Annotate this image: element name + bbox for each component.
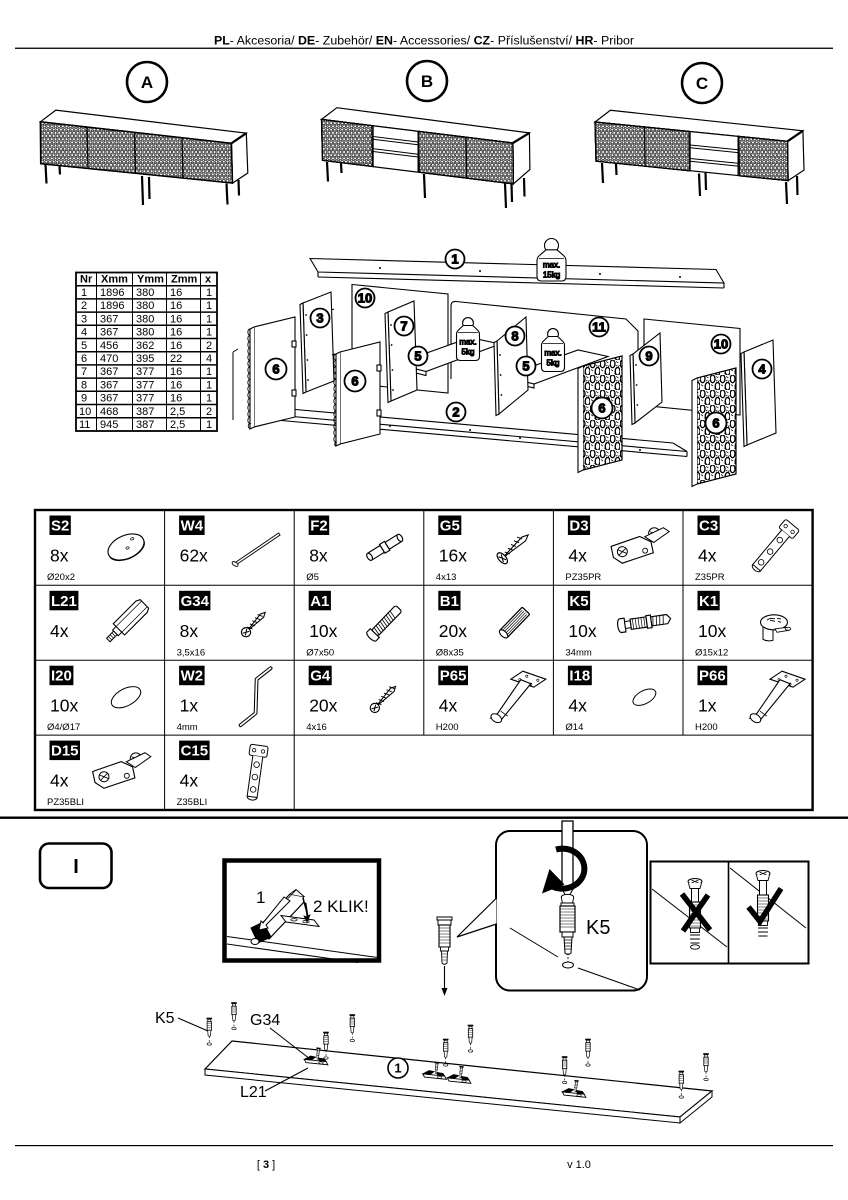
- svg-text:4: 4: [206, 353, 212, 365]
- svg-text:1896: 1896: [100, 287, 124, 299]
- svg-text:A1: A1: [310, 593, 329, 610]
- svg-text:6: 6: [351, 374, 358, 389]
- svg-text:C: C: [696, 74, 708, 93]
- svg-text:Ø4/Ø17: Ø4/Ø17: [47, 722, 80, 733]
- svg-text:8x: 8x: [309, 546, 328, 566]
- svg-text:max.: max.: [459, 338, 476, 347]
- svg-text:Z35PR: Z35PR: [695, 572, 725, 583]
- svg-text:1: 1: [206, 419, 212, 431]
- svg-text:8x: 8x: [180, 621, 199, 641]
- svg-text:W4: W4: [181, 518, 204, 535]
- svg-text:2: 2: [206, 340, 212, 352]
- svg-text:K5: K5: [569, 593, 588, 610]
- svg-text:H200: H200: [695, 722, 718, 733]
- svg-text:Ø8x35: Ø8x35: [436, 647, 464, 658]
- svg-text:8x: 8x: [50, 546, 69, 566]
- svg-text:G34: G34: [250, 1012, 280, 1029]
- svg-text:367: 367: [100, 313, 118, 325]
- svg-text:4x: 4x: [698, 546, 717, 566]
- svg-text:6: 6: [81, 353, 87, 365]
- svg-text:4x: 4x: [180, 771, 199, 791]
- svg-text:16: 16: [170, 300, 182, 312]
- svg-text:C3: C3: [699, 518, 718, 535]
- svg-text:Xmm: Xmm: [101, 274, 128, 286]
- svg-text:380: 380: [136, 327, 154, 339]
- svg-text:377: 377: [136, 393, 154, 405]
- svg-text:945: 945: [100, 419, 118, 431]
- svg-text:10: 10: [358, 291, 372, 306]
- svg-text:1: 1: [206, 366, 212, 378]
- svg-text:11: 11: [592, 320, 606, 335]
- svg-text:2,5: 2,5: [170, 406, 185, 418]
- svg-text:16x: 16x: [439, 546, 467, 566]
- svg-text:F2: F2: [310, 518, 328, 535]
- svg-text:[ 3 ]: [ 3 ]: [257, 1159, 275, 1171]
- svg-text:1: 1: [451, 252, 458, 267]
- svg-text:10: 10: [714, 337, 728, 352]
- svg-text:1x: 1x: [180, 696, 199, 716]
- svg-text:4x13: 4x13: [436, 572, 457, 583]
- svg-text:6: 6: [598, 401, 605, 416]
- svg-text:4x: 4x: [568, 696, 587, 716]
- svg-text:20x: 20x: [439, 621, 467, 641]
- svg-text:5kg: 5kg: [547, 359, 560, 368]
- svg-text:380: 380: [136, 287, 154, 299]
- svg-text:max.: max.: [544, 349, 561, 358]
- svg-text:10x: 10x: [50, 696, 78, 716]
- svg-text:10x: 10x: [698, 621, 726, 641]
- svg-text:2: 2: [452, 405, 459, 420]
- svg-text:Ø20x2: Ø20x2: [47, 572, 75, 583]
- svg-text:1x: 1x: [698, 696, 717, 716]
- svg-text:2,5: 2,5: [170, 419, 185, 431]
- svg-text:3,5x16: 3,5x16: [177, 647, 206, 658]
- svg-text:PL- Akcesoria/ DE- Zubehör/ EN: PL- Akcesoria/ DE- Zubehör/ EN- Accessor…: [214, 34, 634, 48]
- svg-text:H200: H200: [436, 722, 459, 733]
- svg-text:Ø7x50: Ø7x50: [306, 647, 334, 658]
- svg-text:1: 1: [206, 287, 212, 299]
- svg-text:G5: G5: [440, 518, 460, 535]
- svg-text:Nr: Nr: [80, 274, 93, 286]
- svg-text:v 1.0: v 1.0: [567, 1159, 591, 1171]
- svg-text:367: 367: [100, 393, 118, 405]
- svg-text:4mm: 4mm: [177, 722, 198, 733]
- svg-text:9: 9: [645, 349, 652, 364]
- svg-text:B1: B1: [440, 593, 459, 610]
- svg-text:16: 16: [170, 379, 182, 391]
- svg-text:PZ35PR: PZ35PR: [565, 572, 601, 583]
- svg-text:22: 22: [170, 353, 182, 365]
- svg-text:16: 16: [170, 313, 182, 325]
- svg-text:Ymm: Ymm: [137, 274, 164, 286]
- svg-text:A: A: [141, 73, 153, 92]
- svg-text:16: 16: [170, 393, 182, 405]
- svg-text:3: 3: [316, 311, 323, 326]
- svg-text:D15: D15: [51, 743, 79, 760]
- svg-text:16: 16: [170, 287, 182, 299]
- svg-text:5: 5: [414, 349, 421, 364]
- svg-text:B: B: [421, 72, 433, 91]
- svg-text:9: 9: [81, 393, 87, 405]
- svg-text:4x16: 4x16: [306, 722, 327, 733]
- svg-text:5: 5: [522, 359, 529, 374]
- svg-text:10x: 10x: [309, 621, 337, 641]
- svg-text:4x: 4x: [568, 546, 587, 566]
- svg-text:387: 387: [136, 406, 154, 418]
- svg-text:7: 7: [81, 366, 87, 378]
- svg-text:P65: P65: [440, 668, 467, 685]
- svg-text:380: 380: [136, 300, 154, 312]
- svg-text:468: 468: [100, 406, 118, 418]
- svg-text:4: 4: [81, 327, 87, 339]
- svg-text:max.: max.: [543, 261, 560, 270]
- svg-text:11: 11: [79, 419, 90, 431]
- svg-text:380: 380: [136, 313, 154, 325]
- svg-text:3: 3: [81, 313, 87, 325]
- svg-text:W2: W2: [181, 668, 204, 685]
- svg-text:367: 367: [100, 379, 118, 391]
- svg-text:362: 362: [136, 340, 154, 352]
- svg-text:16: 16: [170, 327, 182, 339]
- svg-text:Ø5: Ø5: [306, 572, 319, 583]
- svg-text:C15: C15: [181, 743, 209, 760]
- svg-text:5kg: 5kg: [462, 348, 475, 357]
- svg-text:x: x: [205, 274, 212, 286]
- svg-text:387: 387: [136, 419, 154, 431]
- svg-text:377: 377: [136, 366, 154, 378]
- svg-text:1: 1: [206, 393, 212, 405]
- svg-text:PZ35BLI: PZ35BLI: [47, 797, 84, 808]
- svg-text:Ø14: Ø14: [565, 722, 583, 733]
- svg-text:456: 456: [100, 340, 118, 352]
- svg-text:4x: 4x: [50, 771, 69, 791]
- svg-text:10x: 10x: [568, 621, 596, 641]
- svg-text:Ø15x12: Ø15x12: [695, 647, 728, 658]
- svg-text:L21: L21: [240, 1084, 267, 1101]
- svg-text:395: 395: [136, 353, 154, 365]
- svg-text:2: 2: [81, 300, 87, 312]
- svg-text:1896: 1896: [100, 300, 124, 312]
- svg-text:4x: 4x: [50, 621, 69, 641]
- svg-text:S2: S2: [51, 518, 69, 535]
- svg-text:K5: K5: [586, 917, 610, 939]
- svg-text:1: 1: [256, 888, 265, 907]
- svg-text:15kg: 15kg: [543, 271, 560, 280]
- svg-text:D3: D3: [569, 518, 588, 535]
- svg-text:4x: 4x: [439, 696, 458, 716]
- svg-text:8: 8: [511, 329, 518, 344]
- svg-text:1: 1: [206, 313, 212, 325]
- svg-text:K1: K1: [699, 593, 718, 610]
- svg-text:5: 5: [81, 340, 87, 352]
- svg-text:6: 6: [712, 416, 719, 431]
- svg-text:1: 1: [81, 287, 87, 299]
- svg-text:G34: G34: [181, 593, 210, 610]
- svg-text:I: I: [73, 856, 79, 878]
- svg-text:I20: I20: [51, 668, 72, 685]
- svg-text:2: 2: [206, 406, 212, 418]
- svg-text:L21: L21: [51, 593, 77, 610]
- svg-text:Zmm: Zmm: [171, 274, 198, 286]
- svg-text:377: 377: [136, 379, 154, 391]
- svg-text:K5: K5: [155, 1010, 175, 1027]
- svg-text:7: 7: [400, 319, 407, 334]
- svg-text:34mm: 34mm: [565, 647, 591, 658]
- svg-text:367: 367: [100, 327, 118, 339]
- svg-text:1: 1: [206, 300, 212, 312]
- svg-text:G4: G4: [310, 668, 331, 685]
- svg-text:1: 1: [206, 327, 212, 339]
- svg-text:470: 470: [100, 353, 118, 365]
- svg-text:62x: 62x: [180, 546, 208, 566]
- svg-text:1: 1: [206, 379, 212, 391]
- svg-text:20x: 20x: [309, 696, 337, 716]
- svg-text:16: 16: [170, 340, 182, 352]
- svg-text:8: 8: [81, 379, 87, 391]
- svg-text:I18: I18: [569, 668, 590, 685]
- svg-text:4: 4: [758, 362, 766, 377]
- svg-text:2 KLIK!: 2 KLIK!: [313, 897, 369, 916]
- svg-text:16: 16: [170, 366, 182, 378]
- svg-text:Z35BLI: Z35BLI: [177, 797, 208, 808]
- svg-text:10: 10: [79, 406, 91, 418]
- svg-text:1: 1: [394, 1061, 401, 1076]
- svg-text:6: 6: [272, 362, 279, 377]
- svg-text:P66: P66: [699, 668, 726, 685]
- svg-text:367: 367: [100, 366, 118, 378]
